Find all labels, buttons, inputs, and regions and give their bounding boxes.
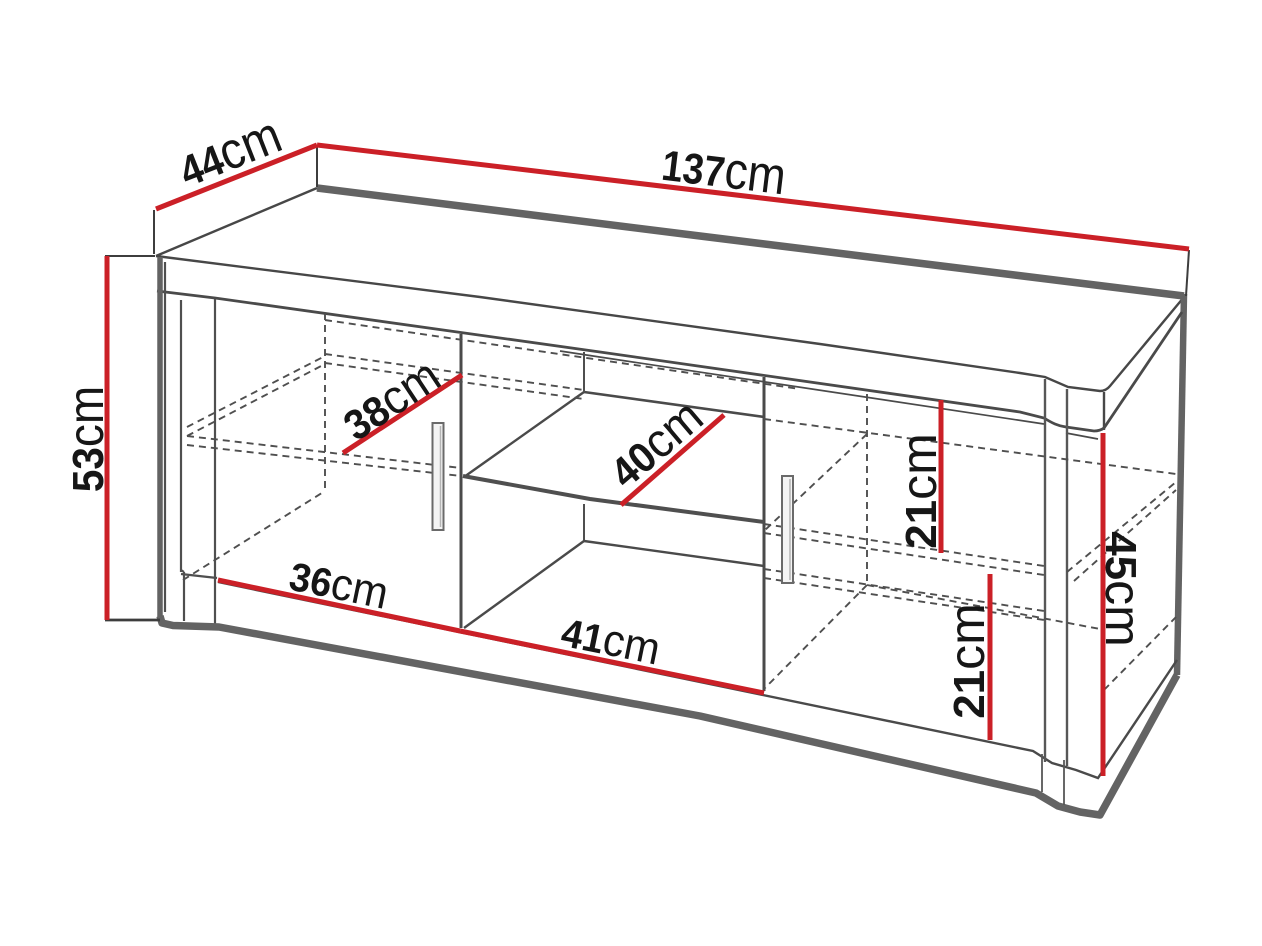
svg-text:21cm: 21cm [891, 433, 947, 549]
svg-text:45cm: 45cm [1095, 531, 1151, 647]
svg-text:21cm: 21cm [939, 603, 995, 719]
svg-text:53cm: 53cm [59, 386, 114, 492]
